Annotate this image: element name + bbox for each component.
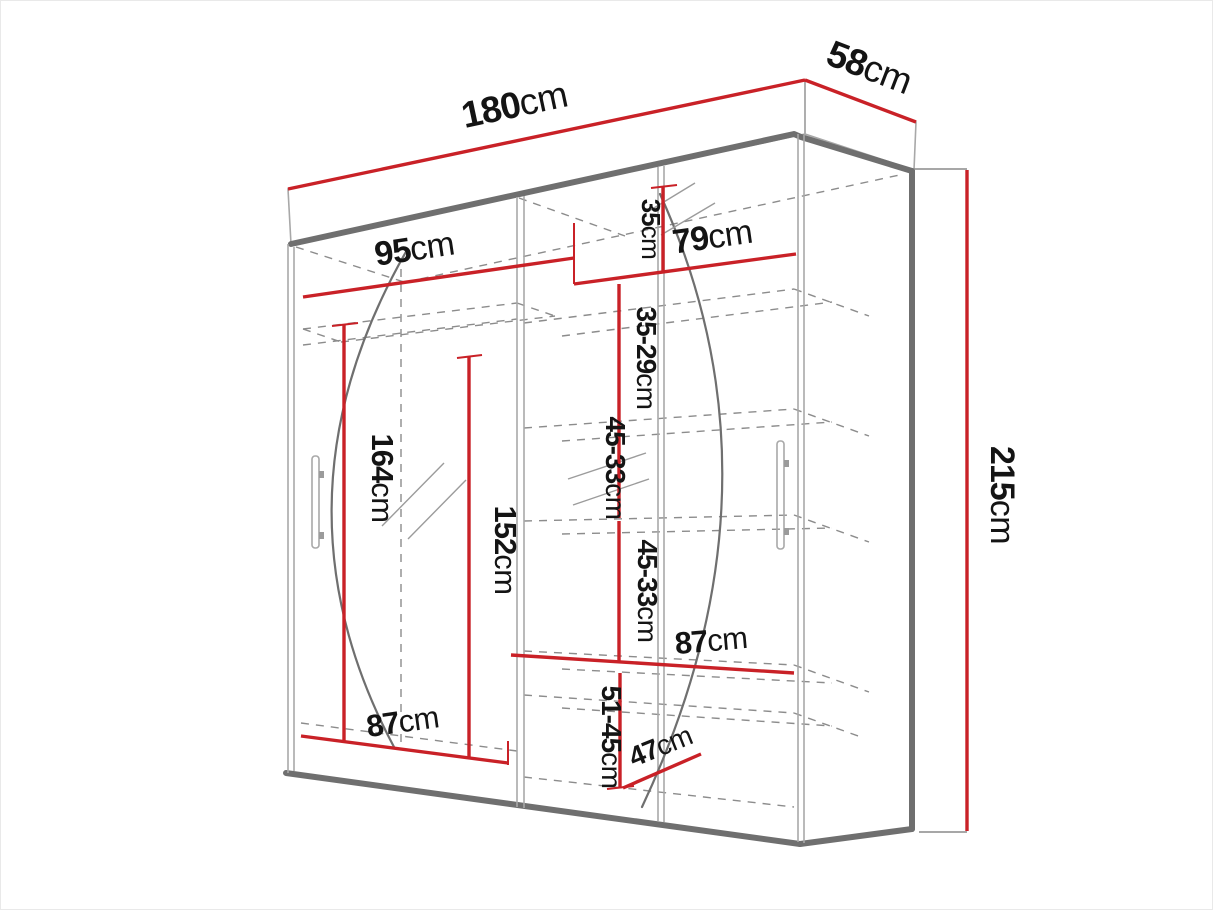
handle-pin: [319, 471, 324, 478]
handle-bar: [777, 441, 784, 549]
handle-bar: [312, 456, 319, 548]
shelf-edge-line: [524, 695, 794, 713]
dim-right-bottom-width-label: 87cm: [673, 620, 749, 661]
dim-height-total-label: 215cm: [983, 446, 1021, 544]
shelf-recede: [517, 303, 555, 316]
top-recede-center: [519, 198, 625, 236]
shelf-edge-line: [562, 302, 832, 336]
carcass-top-edge: [291, 134, 912, 244]
dim-right-top-width-label: 79cm: [670, 213, 755, 262]
front-bottom-edge: [286, 773, 800, 844]
wardrobe-dimension-diagram: 180cm 58cm 215cm 95cm 79cm 35cm 35-29cm …: [0, 0, 1213, 910]
handle-pin: [319, 532, 324, 539]
side-bottom-edge: [800, 829, 912, 844]
shelf-edge-line: [524, 515, 794, 521]
mirror-glint: [408, 480, 466, 539]
shelf-recede: [303, 329, 341, 342]
shelf-edge-line: [524, 777, 794, 807]
right-door-arc: [642, 194, 722, 807]
shelf-edge-line: [524, 409, 794, 428]
dim-right-bottom-width-line: [511, 655, 794, 673]
dim-left-bottom-width-line: [301, 736, 508, 763]
handle-pin: [784, 528, 789, 535]
diagram-canvas: 180cm 58cm 215cm 95cm 79cm 35cm 35-29cm …: [1, 1, 1213, 910]
shelf-edge-line: [562, 669, 832, 683]
dim-right-middle-shelf-label-b: 45-33cm: [632, 540, 663, 643]
dim-left-top-width-label: 95cm: [372, 224, 457, 273]
shelf-recede: [794, 665, 869, 692]
handle-pin: [784, 460, 789, 467]
right-door-handle: [777, 441, 789, 549]
dim-center-hanging-label: 152cm: [488, 505, 523, 594]
dim-left-hanging-label: 164cm: [365, 433, 400, 522]
dim-right-upper-shelf-label: 35-29cm: [631, 307, 662, 410]
dim-width-total-label: 180cm: [458, 74, 571, 136]
dim-bottom-compartment-label: 51-45cm: [596, 686, 627, 789]
shelf-edge-line: [562, 528, 832, 534]
shelf-edge-line: [303, 319, 517, 345]
dim-left-bottom-width-label: 87cm: [364, 699, 441, 744]
left-door-handle: [312, 456, 324, 548]
dim-right-middle-shelf-label-a: 45-33cm: [600, 417, 631, 520]
dim-right-top-shelf-label: 35cm: [636, 199, 666, 260]
